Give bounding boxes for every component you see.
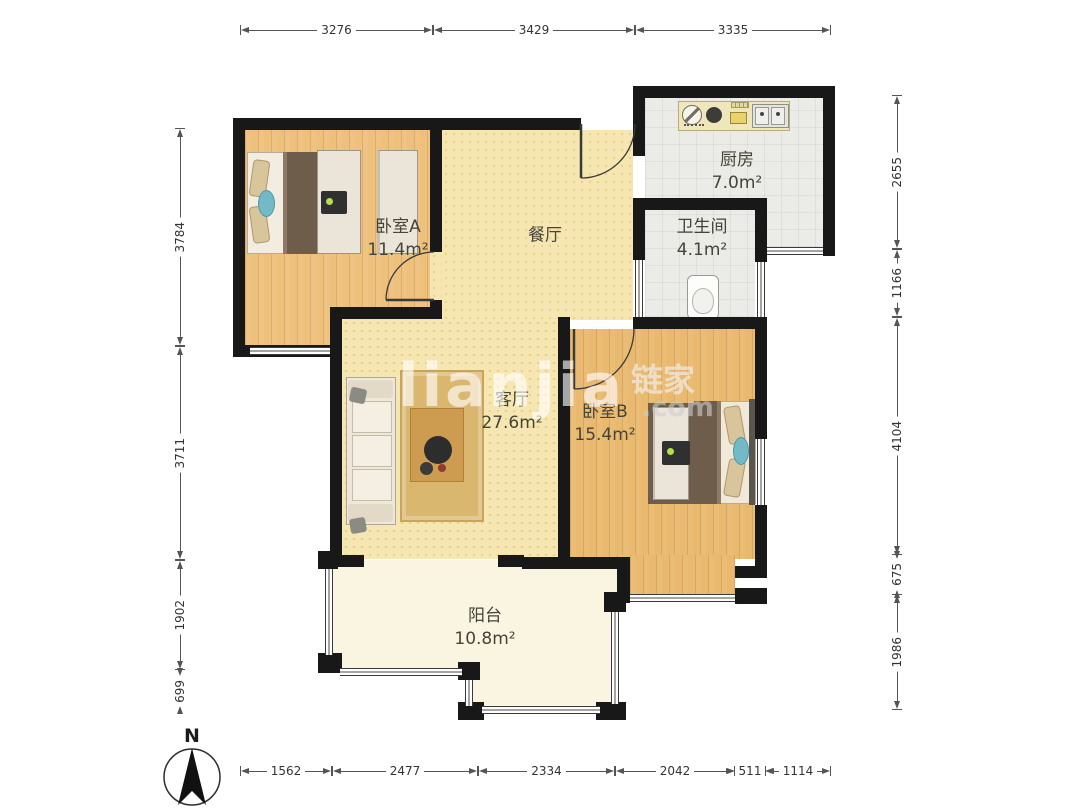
wall [633, 86, 835, 98]
sofa-cushion [352, 469, 392, 501]
sink-basin [755, 107, 769, 125]
wall [633, 86, 645, 156]
room-name: 卧室B [574, 401, 635, 424]
blanket [283, 152, 317, 254]
room-area: 15.4m² [574, 424, 635, 447]
sofa-cushion [352, 401, 392, 433]
wall [823, 86, 835, 256]
room-label-bedroom-a: 卧室A 11.4m² [367, 216, 428, 262]
balcony-window [482, 706, 600, 714]
dim-value: 3276 [317, 24, 356, 36]
range-hood [731, 102, 749, 108]
compass-north-label: N [184, 725, 200, 747]
wall [330, 307, 442, 319]
window [757, 262, 765, 317]
dim-right-2: 1166 [890, 249, 904, 317]
throw-pillow [349, 387, 368, 405]
blanket [694, 401, 721, 504]
dim-top-3: 3335 [635, 23, 831, 37]
dim-value: 1114 [779, 765, 818, 777]
room-area: 11.4m² [367, 239, 428, 262]
window [767, 247, 823, 255]
sink-drain [776, 112, 780, 116]
wall [633, 198, 645, 260]
room-label-dining: 餐厅 [528, 225, 562, 248]
dim-value: 3784 [174, 218, 186, 257]
dim-value: 1166 [891, 264, 903, 303]
dim-right-4: 675 [890, 555, 904, 594]
compass-needle [178, 748, 206, 805]
bedroom-a-floor [245, 307, 330, 347]
throw-pillow [349, 517, 367, 535]
dim-value: 3429 [515, 24, 554, 36]
dim-right-5: 1986 [890, 594, 904, 710]
dim-top-2: 3429 [433, 23, 635, 37]
dim-left-3: 1902 [173, 560, 187, 670]
dim-value: 699 [174, 676, 186, 707]
compass: N [150, 720, 240, 810]
wall [330, 307, 342, 567]
tv-led [326, 198, 333, 205]
dim-value: 1986 [891, 633, 903, 672]
sink-basin [771, 107, 785, 125]
balcony-post [318, 551, 338, 569]
cushion [258, 190, 275, 217]
dim-value: 1562 [267, 765, 306, 777]
wall [558, 317, 570, 567]
balcony-post [604, 592, 626, 612]
dim-bottom-6: 1114 [765, 764, 831, 778]
balcony-window [325, 569, 333, 655]
cup [420, 462, 433, 475]
dim-value: 511 [735, 765, 766, 777]
balcony-window [611, 612, 619, 704]
dim-left-1: 3784 [173, 128, 187, 346]
kettle [424, 436, 452, 464]
sofa-cushion [352, 435, 392, 467]
wall [522, 557, 562, 569]
room-name: 卫生间 [677, 216, 728, 239]
wall [633, 317, 645, 329]
tv-led [667, 448, 674, 455]
room-name: 卧室A [367, 216, 428, 239]
dim-bottom-5: 511 [735, 764, 765, 778]
wall [633, 198, 767, 210]
dim-value: 3335 [714, 24, 753, 36]
window [250, 347, 330, 355]
wall [735, 588, 767, 604]
counter-dots [684, 124, 704, 126]
room-area: 4.1m² [677, 239, 728, 262]
room-label-living: 客厅 27.6m² [481, 389, 542, 435]
stove-unit [730, 112, 747, 124]
dim-value: 4104 [891, 417, 903, 456]
window [757, 439, 765, 505]
tv [662, 441, 690, 465]
room-label-bathroom: 卫生间 4.1m² [677, 216, 728, 262]
dim-value: 3711 [174, 434, 186, 473]
dim-bottom-3: 2334 [478, 764, 615, 778]
wok-burner [682, 105, 702, 125]
dim-top-1: 3276 [240, 23, 433, 37]
wall [430, 118, 442, 252]
floorplan-canvas: 卧室A 11.4m² 餐厅 厨房 7.0m² 卫生间 4.1m² 客厅 27.6… [0, 0, 1080, 810]
balcony-window [340, 668, 462, 676]
window [630, 594, 735, 602]
room-area: 7.0m² [712, 172, 762, 195]
room-name: 阳台 [454, 605, 515, 628]
toilet-seat [692, 288, 714, 314]
doorway-floor [430, 252, 442, 300]
dim-right-3: 4104 [890, 317, 904, 555]
cushion [733, 437, 749, 465]
balcony-post [318, 653, 342, 673]
wall [755, 317, 767, 439]
balcony-post [596, 702, 626, 720]
room-label-kitchen: 厨房 7.0m² [712, 149, 762, 195]
balcony-window [465, 680, 473, 706]
compass-circle [164, 749, 220, 805]
sink-drain [760, 112, 764, 116]
room-label-bedroom-b: 卧室B 15.4m² [574, 401, 635, 447]
dim-right-1: 2655 [890, 95, 904, 249]
room-name: 厨房 [712, 149, 762, 172]
wall [233, 118, 245, 357]
bedroom-b-floor [617, 555, 735, 594]
bathroom-slider [635, 260, 643, 317]
dim-value: 1902 [174, 596, 186, 635]
dim-value: 675 [891, 559, 903, 590]
wall [498, 555, 524, 567]
dim-bottom-2: 2477 [332, 764, 478, 778]
room-name: 餐厅 [528, 225, 562, 248]
room-name: 客厅 [481, 389, 542, 412]
dim-value: 2042 [656, 765, 695, 777]
wall [755, 198, 767, 262]
tv [321, 191, 347, 214]
dim-bottom-1: 1562 [240, 764, 332, 778]
wall [645, 317, 767, 329]
dim-left-4: 699 [173, 670, 187, 712]
dim-bottom-4: 2042 [615, 764, 735, 778]
stove-burner [706, 107, 722, 123]
dim-left-2: 3711 [173, 346, 187, 560]
room-area: 10.8m² [454, 628, 515, 651]
room-area: 27.6m² [481, 412, 542, 435]
wall [755, 505, 767, 570]
dim-value: 2477 [386, 765, 425, 777]
room-label-balcony: 阳台 10.8m² [454, 605, 515, 651]
cup [438, 464, 446, 472]
wall [338, 555, 364, 567]
dim-value: 2655 [891, 153, 903, 192]
wall [233, 118, 581, 130]
dim-value: 2334 [527, 765, 566, 777]
